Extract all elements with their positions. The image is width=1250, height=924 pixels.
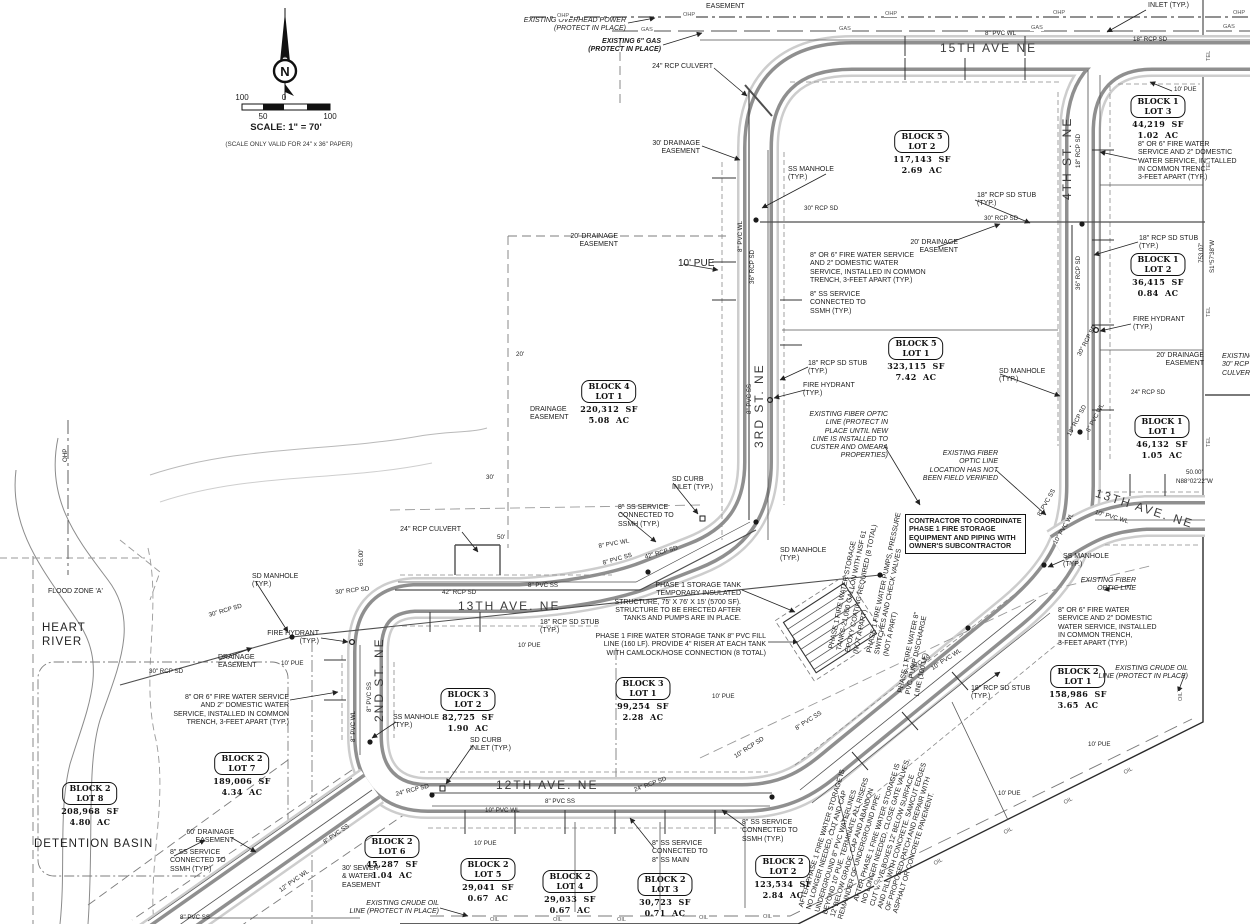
- plan-note: 18" RCP SD: [1066, 404, 1088, 438]
- plan-note: 8" PVC SS: [1036, 488, 1057, 518]
- utility-line-marker: TEL: [1206, 50, 1212, 62]
- lot-badge: BLOCK 1 LOT 146,132 SF 1.05 AC: [1134, 415, 1189, 460]
- plan-note: 30" RCP SD: [1076, 324, 1098, 358]
- lot-id: BLOCK 2 LOT 1: [1050, 665, 1105, 688]
- utility-line-marker: GAS: [1030, 25, 1044, 31]
- plan-note: S1°57'38"W: [1209, 240, 1216, 273]
- plan-note: 10" PVC WL: [930, 647, 963, 672]
- lot-id: BLOCK 3 LOT 1: [615, 677, 670, 700]
- utility-line-marker: OIL: [616, 917, 627, 923]
- plan-note: SCALE: 1" = 70': [250, 122, 321, 133]
- plan-note: 10' PUE: [1088, 741, 1111, 748]
- plan-note: SD CURB INLET (TYP.): [672, 476, 713, 493]
- lot-id: BLOCK 1 LOT 3: [1130, 95, 1185, 118]
- plan-note: 20': [516, 351, 524, 358]
- lot-id: BLOCK 2 LOT 5: [460, 858, 515, 881]
- plan-note: 10" PVC WL: [1052, 512, 1076, 546]
- lot-area: 30,723 SF 0.71 AC: [637, 897, 692, 918]
- lot-area: 46,132 SF 1.05 AC: [1134, 439, 1189, 460]
- street-label: 13TH AVE. NE: [1094, 486, 1196, 531]
- utility-line-marker: OHP: [682, 12, 696, 18]
- plan-note: FIRE HYDRANT (TYP.): [267, 630, 319, 647]
- plan-note: SD CURB INLET (TYP.): [470, 737, 511, 754]
- plan-note: 50: [259, 112, 268, 121]
- plan-note: 42" RCP SD: [644, 545, 679, 561]
- plan-note: PHASE 1 FIRE WATER 8" PVC PUMP DISCHARGE…: [897, 612, 938, 698]
- plan-note: 30': [486, 474, 494, 481]
- lot-id: BLOCK 2 LOT 7: [214, 752, 269, 775]
- lot-area: 82,725 SF 1.90 AC: [440, 712, 495, 733]
- lot-area: 29,033 SF 0.67 AC: [542, 894, 597, 915]
- lot-badge: BLOCK 2 LOT 529,041 SF 0.67 AC: [460, 858, 515, 903]
- plan-note: FLOOD ZONE 'A': [48, 588, 103, 596]
- plan-note: DETENTION BASIN: [34, 838, 153, 852]
- lot-area: 208,968 SF 4.80 AC: [61, 806, 119, 827]
- plan-note: 65.00': [358, 549, 365, 566]
- plan-note: EXISTING FIBER OPTIC LINE (PROTECT IN PL…: [809, 411, 888, 461]
- plan-note: 8" PVC SS: [794, 710, 823, 733]
- lot-area: 36,415 SF 0.84 AC: [1130, 277, 1185, 298]
- plan-note: EXISTING CRUDE OIL LINE (PROTECT IN PLAC…: [350, 900, 439, 917]
- plan-note: 18" RCP SD STUB (TYP.): [808, 360, 867, 377]
- plan-note: 8" PVC SS: [180, 914, 210, 921]
- utility-line-marker: OIL: [932, 857, 945, 867]
- utility-line-marker: OIL: [552, 917, 563, 923]
- plan-note: 8" SS SERVICE CONNECTED TO SSMH (TYP.): [810, 291, 866, 316]
- plan-note: 20' DRAINAGE EASEMENT: [1156, 352, 1204, 369]
- plan-note: 10' PUE: [281, 660, 304, 667]
- plan-note: 8" SS SERVICE CONNECTED TO SSMH (TYP.): [742, 819, 798, 844]
- lot-badge: BLOCK 2 LOT 1158,986 SF 3.65 AC: [1049, 665, 1107, 710]
- plan-note: 10" PVC WL: [485, 807, 520, 814]
- lot-id: BLOCK 3 LOT 2: [440, 688, 495, 711]
- plan-note: 10' PUE: [998, 790, 1021, 797]
- lot-badge: BLOCK 2 LOT 8208,968 SF 4.80 AC: [61, 782, 119, 827]
- lot-badge: BLOCK 3 LOT 199,254 SF 2.28 AC: [615, 677, 670, 722]
- lot-id: BLOCK 2 LOT 3: [637, 873, 692, 896]
- labels-layer: 100050100SCALE: 1" = 70'(SCALE ONLY VALI…: [0, 0, 1250, 924]
- plan-note: 8" PVC SS: [528, 582, 558, 589]
- lot-badge: BLOCK 3 LOT 282,725 SF 1.90 AC: [440, 688, 495, 733]
- plan-note: 100: [323, 112, 336, 121]
- plan-note: FIRE HYDRANT (TYP.): [1133, 316, 1185, 333]
- plan-note: 10' PUE: [518, 642, 541, 649]
- plan-note: 30' DRAINAGE EASEMENT: [652, 140, 700, 157]
- lot-id: BLOCK 2 LOT 8: [62, 782, 117, 805]
- plan-note: EXISTING 6" GAS (PROTECT IN PLACE): [588, 38, 661, 55]
- lot-area: 189,006 SF 4.34 AC: [213, 776, 271, 797]
- plan-note: 10" RCP SD: [733, 735, 766, 760]
- plan-note: 10' PUE: [1174, 86, 1197, 93]
- plan-note: 18" RCP SD: [1133, 36, 1167, 43]
- lot-id: BLOCK 2 LOT 6: [364, 835, 419, 858]
- plan-note: HEART RIVER: [42, 622, 86, 649]
- lot-id: BLOCK 5 LOT 2: [894, 130, 949, 153]
- plan-note: DRAINAGE EASEMENT: [218, 654, 257, 671]
- plan-note: PHASE 1 STORAGE TANK TEMPORARY INSULATED…: [614, 582, 741, 623]
- street-label: 4TH ST. NE: [1060, 117, 1074, 200]
- plan-note: 8" PVC WL: [350, 711, 357, 742]
- plan-note: 8" PVC WL: [985, 30, 1016, 37]
- lot-id: BLOCK 5 LOT 1: [888, 337, 943, 360]
- plan-note: EXISTING FIBER OPTIC LINE: [1081, 577, 1136, 594]
- lot-id: BLOCK 2 LOT 4: [542, 870, 597, 893]
- lot-badge: BLOCK 2 LOT 2123,534 SF 2.84 AC: [754, 855, 812, 900]
- lot-area: 117,143 SF 2.69 AC: [893, 154, 951, 175]
- plan-note: CONTRACTOR TO COORDINATE PHASE 1 FIRE ST…: [905, 514, 1026, 554]
- utility-line-marker: TEL: [1206, 160, 1212, 172]
- plan-note: 36" RCP SD: [1075, 256, 1082, 290]
- street-label: 12TH AVE. NE: [496, 778, 598, 792]
- plan-note: 18" RCP SD: [1075, 134, 1082, 168]
- plan-note: 0: [282, 93, 286, 102]
- plan-note: 36" RCP SD: [749, 250, 756, 284]
- plan-note: FIRE HYDRANT (TYP.): [803, 382, 855, 399]
- plan-note: 8" OR 6" FIRE WATER SERVICE AND 2" DOMES…: [173, 694, 289, 727]
- utility-line-marker: OIL: [489, 917, 500, 923]
- lot-area: 44,219 SF 1.02 AC: [1130, 119, 1185, 140]
- utility-line-marker: OIL: [698, 915, 709, 921]
- lot-area: 99,254 SF 2.28 AC: [615, 701, 670, 722]
- plan-note: 18" RCP SD STUB (TYP.): [977, 192, 1036, 209]
- utility-line-marker: GAS: [640, 27, 654, 33]
- plan-note: SS MANHOLE (TYP.): [788, 166, 834, 183]
- plan-note: 8" PVC WL: [598, 538, 630, 551]
- plan-note: EASEMENT: [706, 3, 745, 11]
- plan-note: INLET (TYP.): [1148, 2, 1189, 10]
- plan-note: N88°02'22"W: [1176, 478, 1213, 485]
- plan-note: 8" PVC WL: [737, 221, 744, 252]
- plan-note: SS MANHOLE (TYP.): [393, 714, 439, 731]
- plan-note: 24" RCP SD: [395, 783, 430, 798]
- utility-line-marker: OIL: [1122, 766, 1135, 776]
- plan-note: 8" SS SERVICE CONNECTED TO SSMH (TYP.): [618, 504, 674, 529]
- plan-note: SD MANHOLE (TYP.): [252, 573, 298, 590]
- plan-note: 30" RCP SD: [208, 603, 243, 619]
- plan-note: 24" RCP CULVERT: [400, 526, 461, 534]
- plan-note: 8" PVC SS: [322, 823, 351, 846]
- plan-note: 8" OR 6" FIRE WATER SERVICE AND 2" DOMES…: [810, 252, 926, 285]
- site-plan-sheet: N 100050100SCALE: 1" = 70'(SCALE ONLY VA…: [0, 0, 1250, 924]
- plan-note: 18" RCP SD STUB (TYP.): [971, 685, 1030, 702]
- plan-note: 10' PUE: [474, 840, 497, 847]
- utility-line-marker: OHP: [556, 13, 570, 19]
- utility-line-marker: GAS: [838, 26, 852, 32]
- lot-id: BLOCK 1 LOT 2: [1130, 253, 1185, 276]
- plan-note: EXISTING OVERHEAD POWER (PROTECT IN PLAC…: [524, 17, 626, 34]
- plan-note: 24" RCP SD: [1131, 389, 1165, 396]
- utility-line-marker: OHP: [1232, 10, 1246, 16]
- plan-note: 18" RCP SD STUB (TYP.): [1139, 235, 1198, 252]
- plan-note: SD MANHOLE (TYP.): [780, 547, 826, 564]
- plan-note: (SCALE ONLY VALID FOR 24" x 36" PAPER): [225, 141, 352, 148]
- lot-area: 123,534 SF 2.84 AC: [754, 879, 812, 900]
- plan-note: 20' DRAINAGE EASEMENT: [570, 233, 618, 250]
- plan-note: 50.00': [1186, 469, 1203, 476]
- lot-badge: BLOCK 1 LOT 344,219 SF 1.02 AC: [1130, 95, 1185, 140]
- plan-note: 100: [235, 93, 248, 102]
- plan-note: EXISTING FIBER OPTIC LINE LOCATION HAS N…: [923, 450, 998, 483]
- lot-badge: BLOCK 4 LOT 1220,312 SF 5.08 AC: [580, 380, 638, 425]
- plan-note: SD MANHOLE (TYP.): [999, 368, 1045, 385]
- lot-badge: BLOCK 2 LOT 330,723 SF 0.71 AC: [637, 873, 692, 918]
- utility-line-marker: TEL: [1206, 436, 1212, 448]
- lot-badge: BLOCK 2 LOT 429,033 SF 0.67 AC: [542, 870, 597, 915]
- plan-note: 24" RCP CULVERT: [652, 63, 713, 71]
- lot-area: 29,041 SF 0.67 AC: [460, 882, 515, 903]
- street-label: 3RD ST. NE: [752, 363, 766, 448]
- plan-note: EXISTING CRUDE OIL LINE (PROTECT IN PLAC…: [1099, 665, 1188, 682]
- plan-note: 50': [497, 534, 505, 541]
- plan-note: DRAINAGE EASEMENT: [530, 406, 569, 423]
- lot-area: 323,115 SF 7.42 AC: [887, 361, 945, 382]
- utility-line-marker: GAS: [1222, 24, 1236, 30]
- plan-note: PHASE 1 FIRE WATER STORAGE TANK 8" PVC F…: [595, 633, 766, 658]
- plan-note: OHP: [62, 449, 69, 462]
- utility-line-marker: OHP: [884, 11, 898, 17]
- plan-note: 8" PVC SS: [545, 798, 575, 805]
- utility-line-marker: OIL: [1002, 826, 1015, 836]
- plan-note: 8" OR 6" FIRE WATER SERVICE AND 2" DOMES…: [1058, 607, 1157, 648]
- plan-note: 8" OR 6" FIRE WATER SERVICE AND 2" DOMES…: [1138, 141, 1237, 182]
- lot-badge: BLOCK 5 LOT 2117,143 SF 2.69 AC: [893, 130, 951, 175]
- plan-note: 30" RCP SD: [149, 668, 183, 675]
- street-label: 2ND ST. NE: [372, 637, 386, 722]
- plan-note: 8" PVC SS: [602, 552, 633, 567]
- plan-note: 8" SS SERVICE CONNECTED TO 8" SS MAIN: [652, 840, 708, 865]
- plan-note: 60' DRAINAGE EASEMENT: [186, 829, 234, 846]
- plan-note: 12" PVC WL: [278, 868, 310, 894]
- plan-note: 30" RCP SD: [335, 585, 370, 596]
- lot-badge: BLOCK 2 LOT 7189,006 SF 4.34 AC: [213, 752, 271, 797]
- plan-note: 24" RCP SD: [633, 775, 668, 794]
- plan-note: 10' PUE: [678, 258, 714, 270]
- lot-area: 158,986 SF 3.65 AC: [1049, 689, 1107, 710]
- street-label: 13TH AVE. NE: [458, 599, 560, 613]
- lot-id: BLOCK 1 LOT 1: [1134, 415, 1189, 438]
- lot-id: BLOCK 4 LOT 1: [581, 380, 636, 403]
- plan-note: 30" RCP SD: [804, 205, 838, 212]
- plan-note: 42" RCP SD: [442, 589, 476, 596]
- plan-note: 18" RCP SD STUB (TYP.): [540, 619, 599, 636]
- lot-area: 45,287 SF 1.04 AC: [364, 859, 419, 880]
- lot-id: BLOCK 2 LOT 2: [755, 855, 810, 878]
- plan-note: 10' PUE: [712, 693, 735, 700]
- utility-line-marker: OIL: [1178, 691, 1184, 702]
- utility-line-marker: OIL: [1062, 796, 1075, 806]
- plan-note: EXISTING 30" RCP CULVERT: [1222, 353, 1250, 378]
- utility-line-marker: OIL: [762, 914, 773, 920]
- plan-note: 10" PVC WL: [1094, 509, 1129, 526]
- plan-note: SS MANHOLE (TYP.): [1063, 553, 1109, 570]
- lot-badge: BLOCK 5 LOT 1323,115 SF 7.42 AC: [887, 337, 945, 382]
- plan-note: 753.07': [1198, 243, 1205, 263]
- lot-badge: BLOCK 2 LOT 645,287 SF 1.04 AC: [364, 835, 419, 880]
- plan-note: 8" SS SERVICE CONNECTED TO SSMH (TYP.): [170, 849, 226, 874]
- lot-area: 220,312 SF 5.08 AC: [580, 404, 638, 425]
- plan-note: 30" RCP SD: [984, 215, 1018, 222]
- utility-line-marker: OHP: [1052, 10, 1066, 16]
- utility-line-marker: TEL: [1206, 306, 1212, 318]
- street-label: 15TH AVE NE: [940, 41, 1037, 55]
- lot-badge: BLOCK 1 LOT 236,415 SF 0.84 AC: [1130, 253, 1185, 298]
